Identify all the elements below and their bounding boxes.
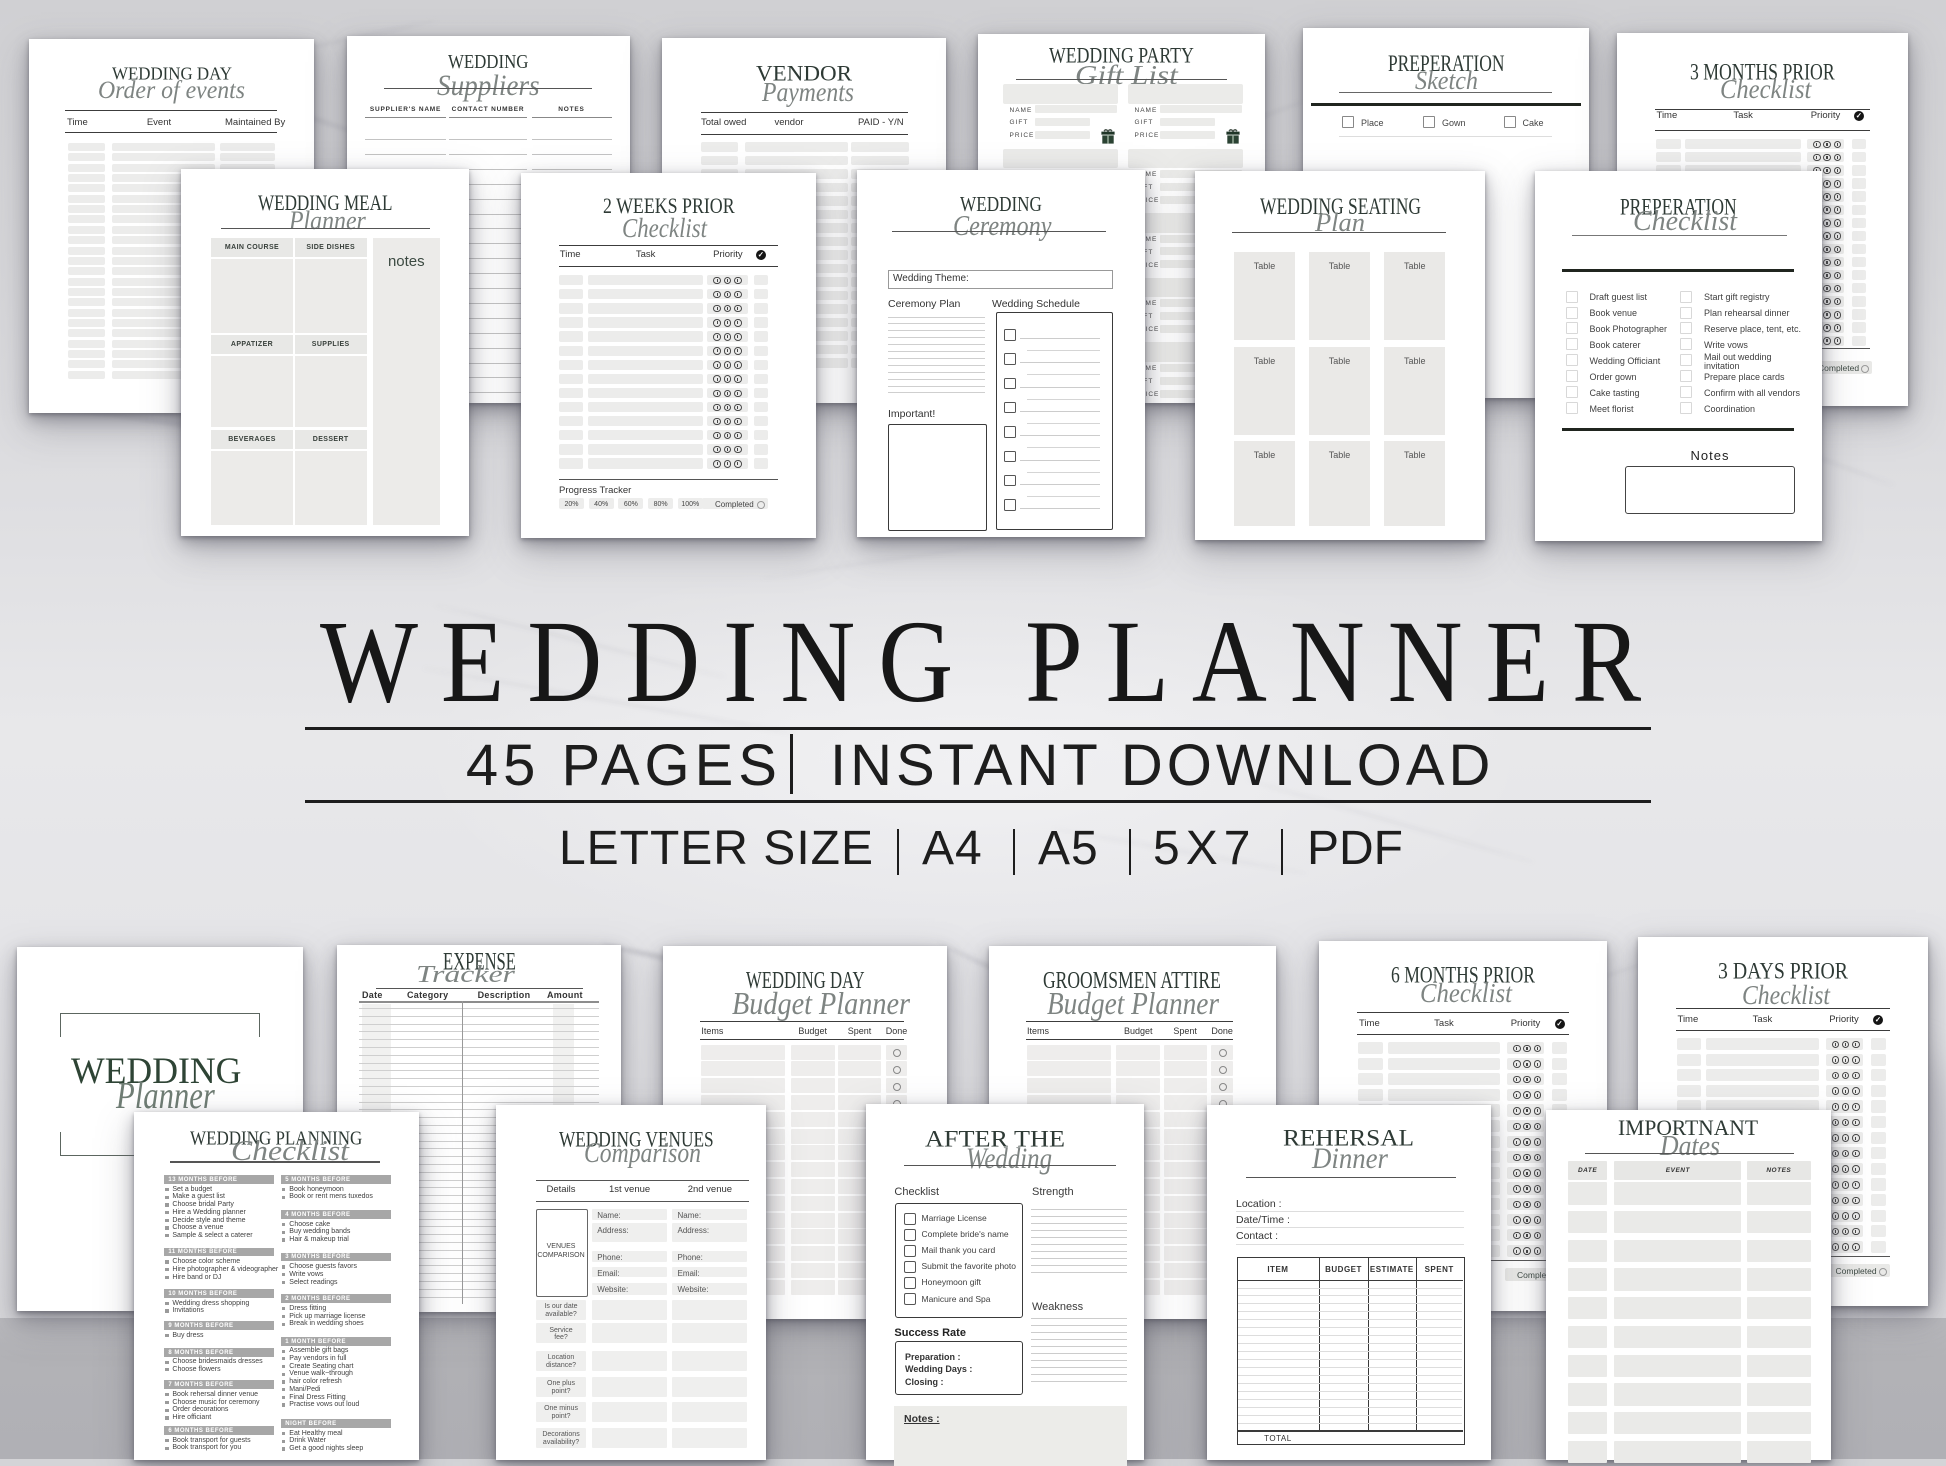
svg-text:Sketch: Sketch	[1415, 66, 1478, 95]
svg-text:Checklist: Checklist	[1420, 978, 1513, 1008]
svg-text:Wedding: Wedding	[966, 1142, 1052, 1175]
svg-text:Tracker: Tracker	[416, 962, 516, 988]
svg-text:Checklist: Checklist	[1633, 206, 1738, 237]
svg-text:Checklist: Checklist	[1720, 74, 1813, 104]
svg-text:Dates: Dates	[1659, 1131, 1720, 1162]
svg-text:Dinner: Dinner	[1311, 1142, 1388, 1175]
svg-text:Payments: Payments	[761, 77, 854, 107]
svg-text:Budget Planner: Budget Planner	[1047, 985, 1219, 1021]
svg-text:Checklist: Checklist	[622, 213, 708, 243]
svg-text:Ceremony: Ceremony	[953, 211, 1052, 242]
svg-text:Checklist: Checklist	[1742, 980, 1831, 1010]
svg-text:Planner: Planner	[288, 206, 367, 235]
svg-text:Comparison: Comparison	[584, 1138, 701, 1169]
svg-text:Budget Planner: Budget Planner	[732, 985, 910, 1021]
svg-text:Order of events: Order of events	[98, 77, 245, 104]
svg-text:Suppliers: Suppliers	[437, 69, 540, 102]
